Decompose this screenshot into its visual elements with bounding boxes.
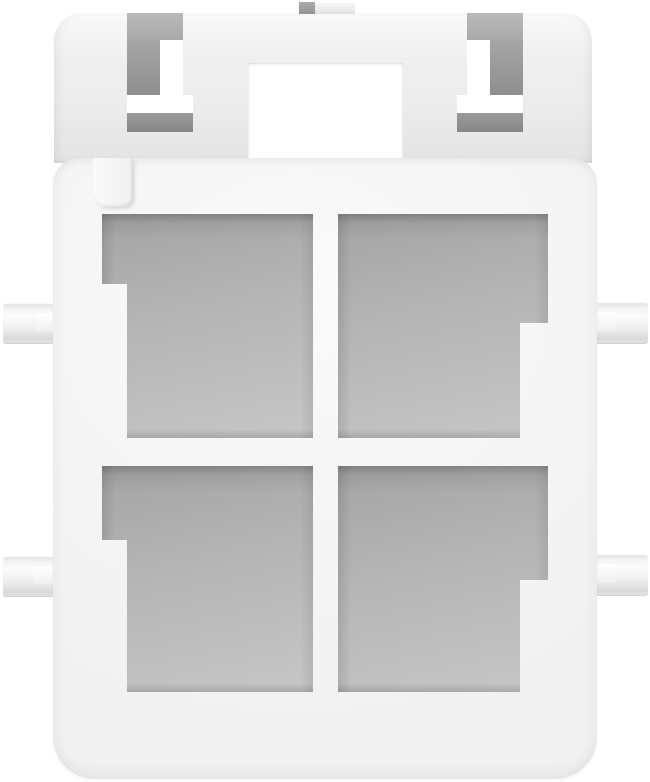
left-latch-recess	[127, 113, 193, 132]
right-latch-window-inner-wall	[490, 40, 523, 95]
mounting-tab-face	[597, 312, 616, 331]
mounting-tab-face	[34, 313, 53, 331]
center-window-opening	[248, 63, 403, 158]
mounting-tab-left-upper	[3, 303, 53, 344]
right-latch-window-inner-wall-top	[467, 13, 523, 40]
terminal-cavity-top-right	[338, 214, 548, 438]
mounting-tab-right-lower	[597, 554, 648, 596]
mounting-tab-face	[597, 564, 616, 583]
terminal-cavity-top-left	[102, 214, 313, 438]
connector-product-image	[0, 0, 650, 782]
polarization-rib	[93, 158, 132, 207]
mounting-tab-right-upper	[597, 302, 648, 344]
left-latch-window-opening-lower	[127, 95, 193, 113]
right-latch-window-opening	[467, 40, 490, 95]
left-latch-window-inner-wall	[127, 40, 160, 95]
right-latch-recess	[457, 113, 523, 132]
mounting-tab-left-lower	[3, 556, 53, 597]
left-latch-window-opening	[160, 40, 183, 95]
left-latch-window-inner-wall-top	[127, 13, 183, 40]
mounting-tab-face	[34, 566, 53, 584]
top-alignment-tab-shadow-face	[299, 2, 315, 14]
terminal-cavity-bottom-right	[338, 466, 548, 692]
terminal-cavity-bottom-left	[102, 466, 313, 692]
right-latch-window-opening-lower	[457, 95, 523, 113]
top-alignment-tab	[315, 2, 355, 14]
